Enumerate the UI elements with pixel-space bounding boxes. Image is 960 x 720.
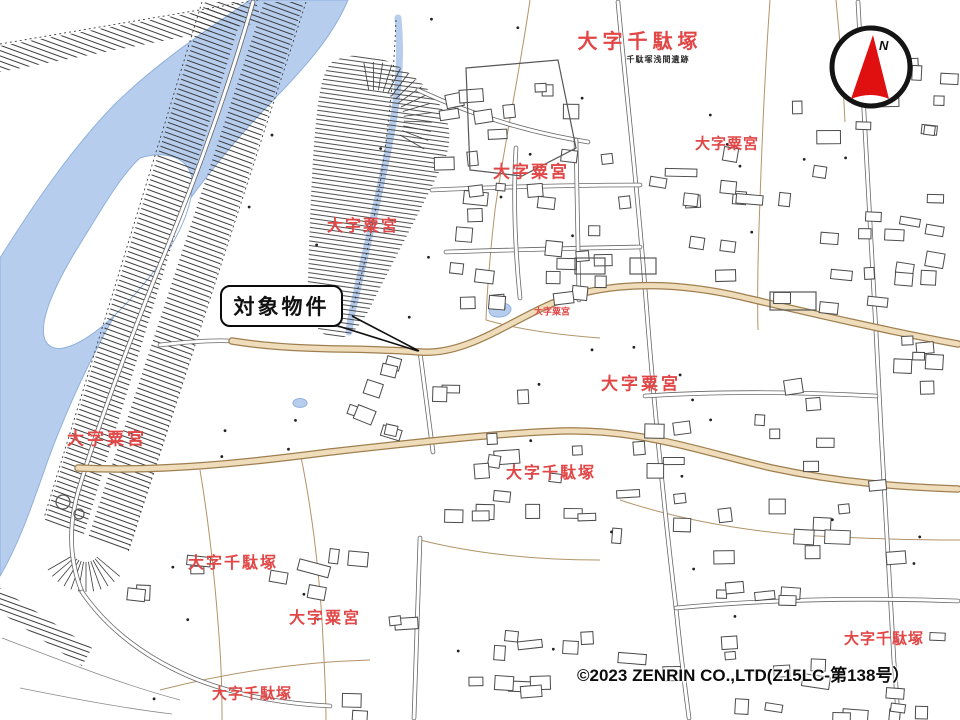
copyright-text: ©2023 ZENRIN CO.,LTD(Z15LC-第138号）: [577, 661, 909, 686]
target-property-callout: 対象物件: [220, 285, 343, 327]
map-canvas: N 大字千駄塚千駄塚浅間遺跡大字粟宮大字粟宮大字粟宮大字粟宮大字粟宮大字粟宮大字…: [0, 0, 960, 720]
map-linework: N: [0, 0, 960, 720]
compass-n-label: N: [879, 38, 889, 53]
north-compass: N: [832, 28, 910, 106]
pond: [293, 399, 307, 408]
target-property-label: 対象物件: [234, 291, 330, 321]
